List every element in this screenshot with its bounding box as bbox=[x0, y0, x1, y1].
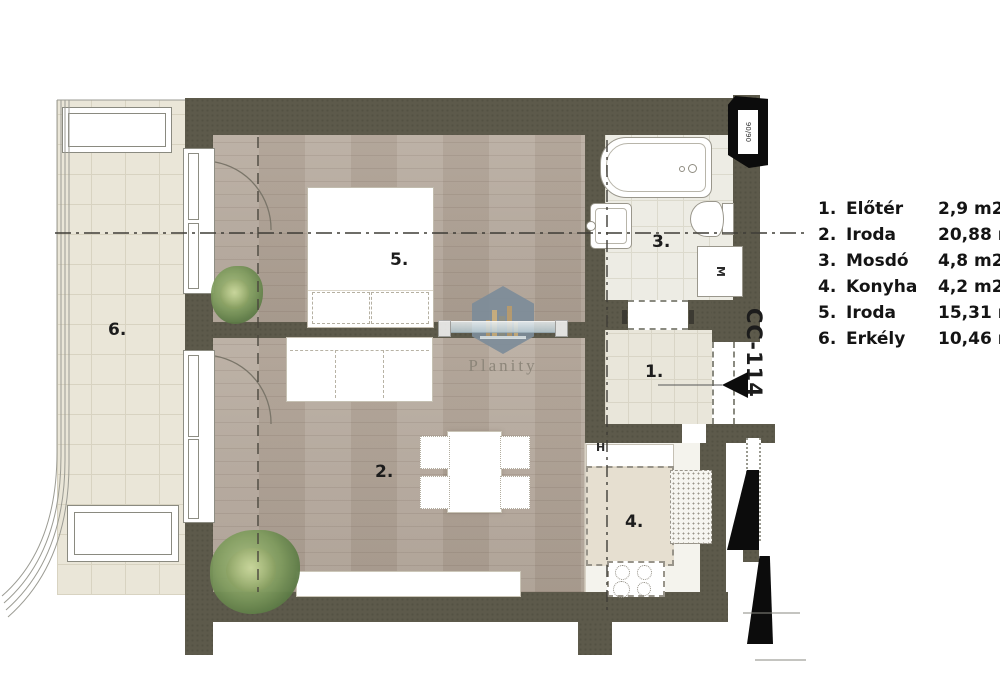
door-arc-room2 bbox=[215, 356, 271, 424]
legend-area: 4,8 m2 bbox=[938, 248, 1000, 274]
balcony-railing-line bbox=[2, 100, 57, 596]
room-label-kitchen: 4. bbox=[625, 512, 643, 532]
hydrant-marker: H bbox=[596, 441, 605, 454]
floor-plan-canvas: M 90/90 6. 5. bbox=[0, 0, 1000, 678]
legend-no: 5. bbox=[818, 300, 846, 326]
legend-row: 6. Erkély 10,46 m2 bbox=[818, 326, 980, 352]
room-label-bathroom: 3. bbox=[652, 232, 670, 252]
balcony-railing-line bbox=[8, 100, 69, 617]
legend-no: 6. bbox=[818, 326, 846, 352]
legend-area: 15,31 m2 bbox=[938, 300, 1000, 326]
legend-area: 10,46 m2 bbox=[938, 326, 1000, 352]
room-label-entry: 1. bbox=[645, 362, 663, 382]
legend-row: 5. Iroda 15,31 m2 bbox=[818, 300, 980, 326]
legend-row: 3. Mosdó 4,8 m2 bbox=[818, 248, 980, 274]
legend-area: 4,2 m2 bbox=[938, 274, 1000, 300]
room-label-balcony: 6. bbox=[108, 320, 126, 340]
legend-name: Iroda bbox=[846, 222, 938, 248]
legend-no: 4. bbox=[818, 274, 846, 300]
legend-no: 1. bbox=[818, 196, 846, 222]
legend-row: 4. Konyha 4,2 m2 bbox=[818, 274, 980, 300]
door-arc-room5 bbox=[215, 162, 271, 230]
room-label-office2: 2. bbox=[375, 462, 393, 482]
legend-no: 2. bbox=[818, 222, 846, 248]
legend-name: Mosdó bbox=[846, 248, 938, 274]
legend-area: 2,9 m2 bbox=[938, 196, 1000, 222]
balcony-railing-line bbox=[4, 100, 61, 603]
legend-row: 2. Iroda 20,88 m2 bbox=[818, 222, 980, 248]
balcony-railing-line bbox=[6, 100, 65, 610]
room-label-office5: 5. bbox=[390, 250, 408, 270]
area-legend: 1. Előtér 2,9 m2 2. Iroda 20,88 m2 3. Mo… bbox=[818, 196, 980, 352]
legend-no: 3. bbox=[818, 248, 846, 274]
legend-name: Előtér bbox=[846, 196, 938, 222]
legend-name: Erkély bbox=[846, 326, 938, 352]
legend-area: 20,88 m2 bbox=[938, 222, 1000, 248]
legend-name: Iroda bbox=[846, 300, 938, 326]
legend-name: Konyha bbox=[846, 274, 938, 300]
legend-row: 1. Előtér 2,9 m2 bbox=[818, 196, 980, 222]
